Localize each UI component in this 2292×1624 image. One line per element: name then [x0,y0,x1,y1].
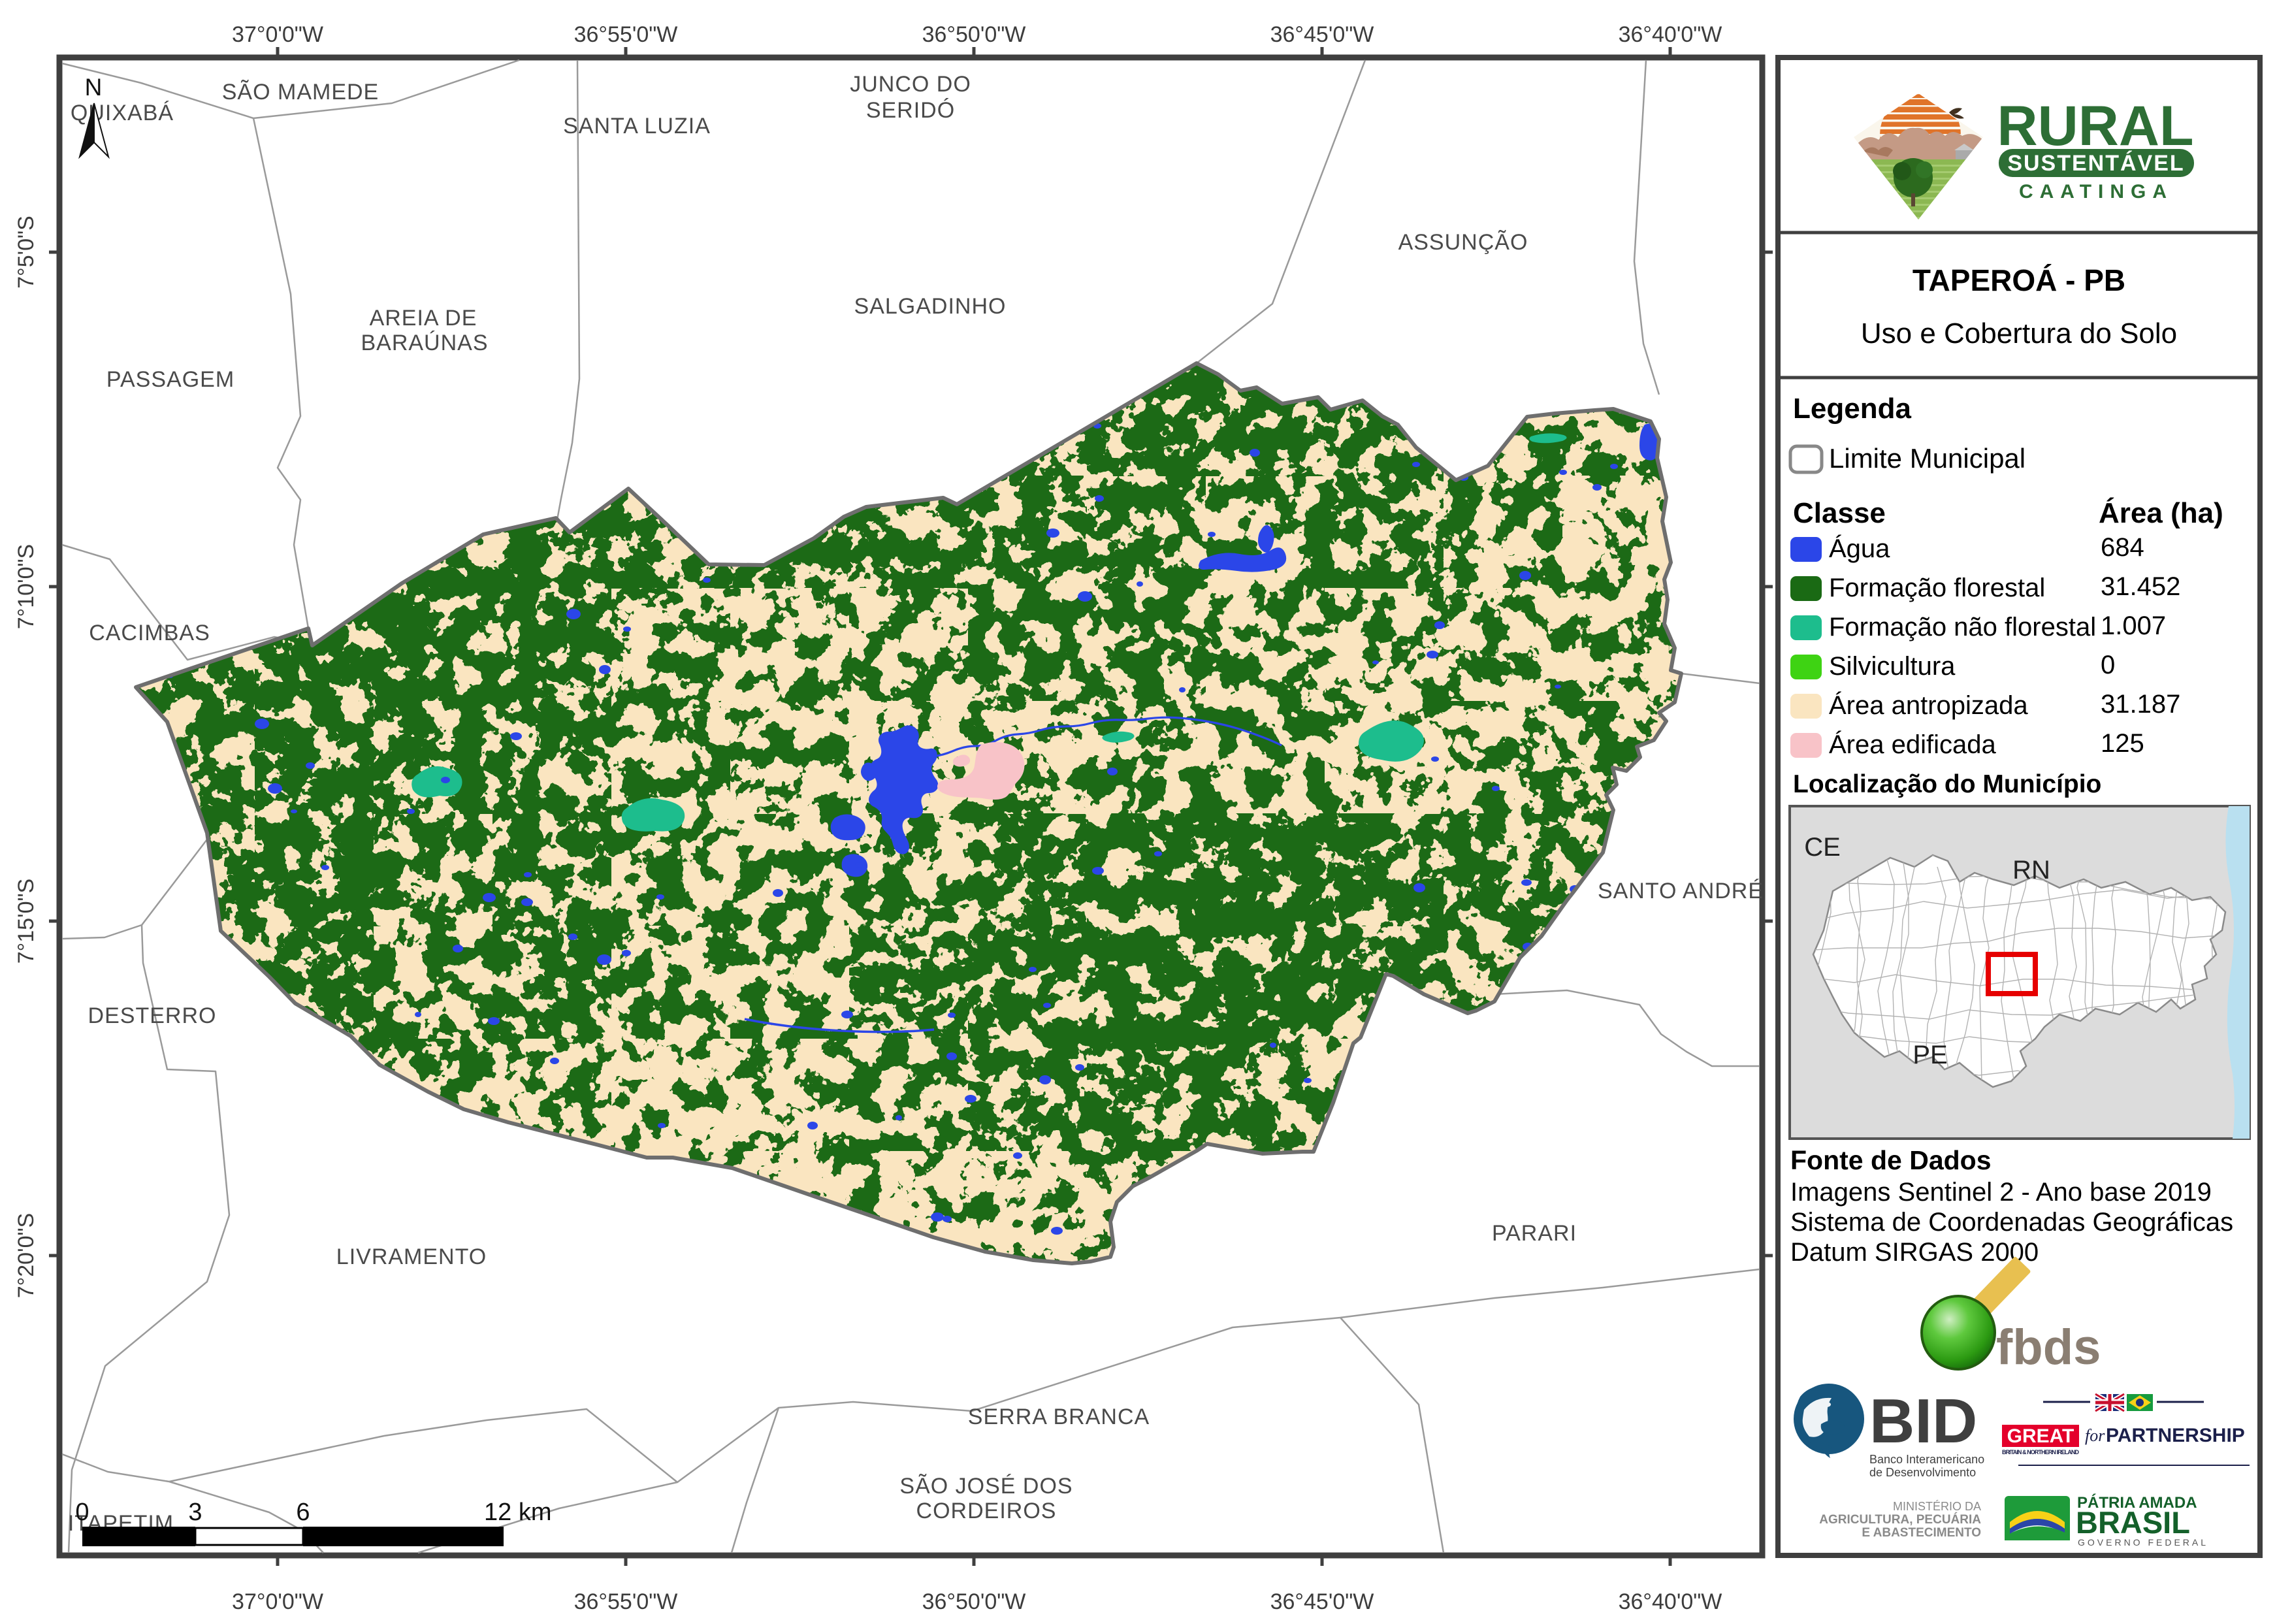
svg-text:36°40'0"W: 36°40'0"W [1619,22,1722,47]
svg-text:SUSTENTÁVEL: SUSTENTÁVEL [2007,151,2184,176]
svg-text:BRASIL: BRASIL [2076,1505,2190,1540]
svg-text:36°45'0"W: 36°45'0"W [1270,1589,1374,1614]
svg-text:Banco Interamericano: Banco Interamericano [1869,1453,1984,1466]
svg-text:BID: BID [1869,1386,1977,1456]
svg-text:Uso e Cobertura do Solo: Uso e Cobertura do Solo [1861,317,2177,349]
svg-text:BRITAIN & NORTHERN IRELAND: BRITAIN & NORTHERN IRELAND [2002,1449,2080,1455]
svg-text:CE: CE [1804,833,1841,862]
svg-text:SERRA BRANCA: SERRA BRANCA [968,1405,1150,1429]
svg-text:7°20'0"S: 7°20'0"S [14,1213,39,1298]
svg-text:0: 0 [75,1499,89,1526]
svg-text:N: N [85,74,103,101]
svg-text:QUIXABÁ: QUIXABÁ [71,101,174,125]
svg-text:125: 125 [2101,729,2144,758]
svg-text:6: 6 [296,1499,310,1526]
svg-text:Imagens Sentinel 2 - Ano base: Imagens Sentinel 2 - Ano base 2019 [1790,1178,2212,1207]
svg-text:GREAT: GREAT [2007,1425,2074,1447]
svg-text:1.007: 1.007 [2101,611,2166,640]
svg-text:36°50'0"W: 36°50'0"W [922,22,1026,47]
svg-text:SERIDÓ: SERIDÓ [866,98,955,123]
svg-text:37°0'0"W: 37°0'0"W [232,1589,323,1614]
svg-text:Área (ha): Área (ha) [2099,496,2223,529]
svg-text:0: 0 [2101,651,2115,679]
svg-text:Limite Municipal: Limite Municipal [1829,443,2026,474]
svg-text:Datum SIRGAS 2000: Datum SIRGAS 2000 [1790,1238,2039,1267]
svg-text:E ABASTECIMENTO: E ABASTECIMENTO [1862,1526,1981,1540]
svg-text:de Desenvolvimento: de Desenvolvimento [1869,1466,1976,1479]
svg-text:Classe: Classe [1793,497,1886,529]
svg-text:PE: PE [1913,1041,1947,1069]
svg-text:TAPEROÁ - PB: TAPEROÁ - PB [1913,263,2125,297]
svg-text:LIVRAMENTO: LIVRAMENTO [336,1244,487,1269]
svg-text:for: for [2085,1426,2105,1445]
svg-text:GOVERNO FEDERAL: GOVERNO FEDERAL [2078,1537,2208,1548]
svg-text:SÃO JOSÉ DOS: SÃO JOSÉ DOS [899,1474,1073,1499]
svg-text:BARAÚNAS: BARAÚNAS [361,331,488,355]
svg-text:AREIA DE: AREIA DE [370,306,477,331]
svg-text:Legenda: Legenda [1793,393,1911,425]
svg-text:SANTA LUZIA: SANTA LUZIA [563,114,711,138]
svg-text:36°45'0"W: 36°45'0"W [1270,22,1374,47]
svg-text:36°40'0"W: 36°40'0"W [1619,1589,1722,1614]
svg-text:CACIMBAS: CACIMBAS [89,621,210,645]
svg-text:SANTO ANDRÉ: SANTO ANDRÉ [1598,879,1764,903]
svg-text:36°55'0"W: 36°55'0"W [574,1589,678,1614]
svg-text:7°10'0"S: 7°10'0"S [14,544,39,629]
svg-text:Formação florestal: Formação florestal [1829,574,2045,602]
svg-text:ASSUNÇÃO: ASSUNÇÃO [1398,230,1528,255]
svg-text:Área edificada: Área edificada [1829,730,1996,759]
svg-text:12 km: 12 km [484,1499,551,1526]
svg-text:PARARI: PARARI [1492,1221,1577,1246]
svg-text:Formação não florestal: Formação não florestal [1829,613,2096,641]
svg-text:CORDEIROS: CORDEIROS [916,1499,1057,1523]
svg-text:7°15'0"S: 7°15'0"S [14,879,39,964]
svg-text:JUNCO DO: JUNCO DO [850,72,971,97]
svg-text:31.187: 31.187 [2101,690,2180,719]
svg-text:31.452: 31.452 [2101,572,2180,601]
svg-text:3: 3 [188,1499,202,1526]
svg-text:AGRICULTURA, PECUÁRIA: AGRICULTURA, PECUÁRIA [1819,1512,1981,1527]
svg-text:Localização do Município: Localização do Município [1793,770,2101,798]
svg-text:SÃO MAMEDE: SÃO MAMEDE [222,80,379,105]
svg-text:36°50'0"W: 36°50'0"W [922,1589,1026,1614]
svg-text:RURAL: RURAL [1997,95,2194,157]
svg-text:Fonte de Dados: Fonte de Dados [1790,1145,1992,1175]
svg-text:36°55'0"W: 36°55'0"W [574,22,678,47]
svg-text:CAATINGA: CAATINGA [2019,181,2173,203]
svg-text:RN: RN [2012,856,2050,885]
svg-text:37°0'0"W: 37°0'0"W [232,22,323,47]
svg-text:684: 684 [2101,533,2144,562]
svg-text:MINISTÉRIO DA: MINISTÉRIO DA [1893,1500,1981,1513]
svg-text:Silvicultura: Silvicultura [1829,652,1956,681]
svg-text:DESTERRO: DESTERRO [88,1003,217,1028]
svg-text:SALGADINHO: SALGADINHO [854,294,1007,319]
svg-text:fbds: fbds [1996,1320,2101,1375]
svg-text:PASSAGEM: PASSAGEM [106,367,234,392]
svg-text:PARTNERSHIP: PARTNERSHIP [2106,1425,2245,1446]
svg-text:7°5'0"S: 7°5'0"S [14,216,39,289]
svg-text:Área antropizada: Área antropizada [1829,690,2028,720]
svg-text:Água: Água [1829,534,1890,563]
svg-text:Sistema de Coordenadas Geográf: Sistema de Coordenadas Geográficas [1790,1208,2233,1237]
